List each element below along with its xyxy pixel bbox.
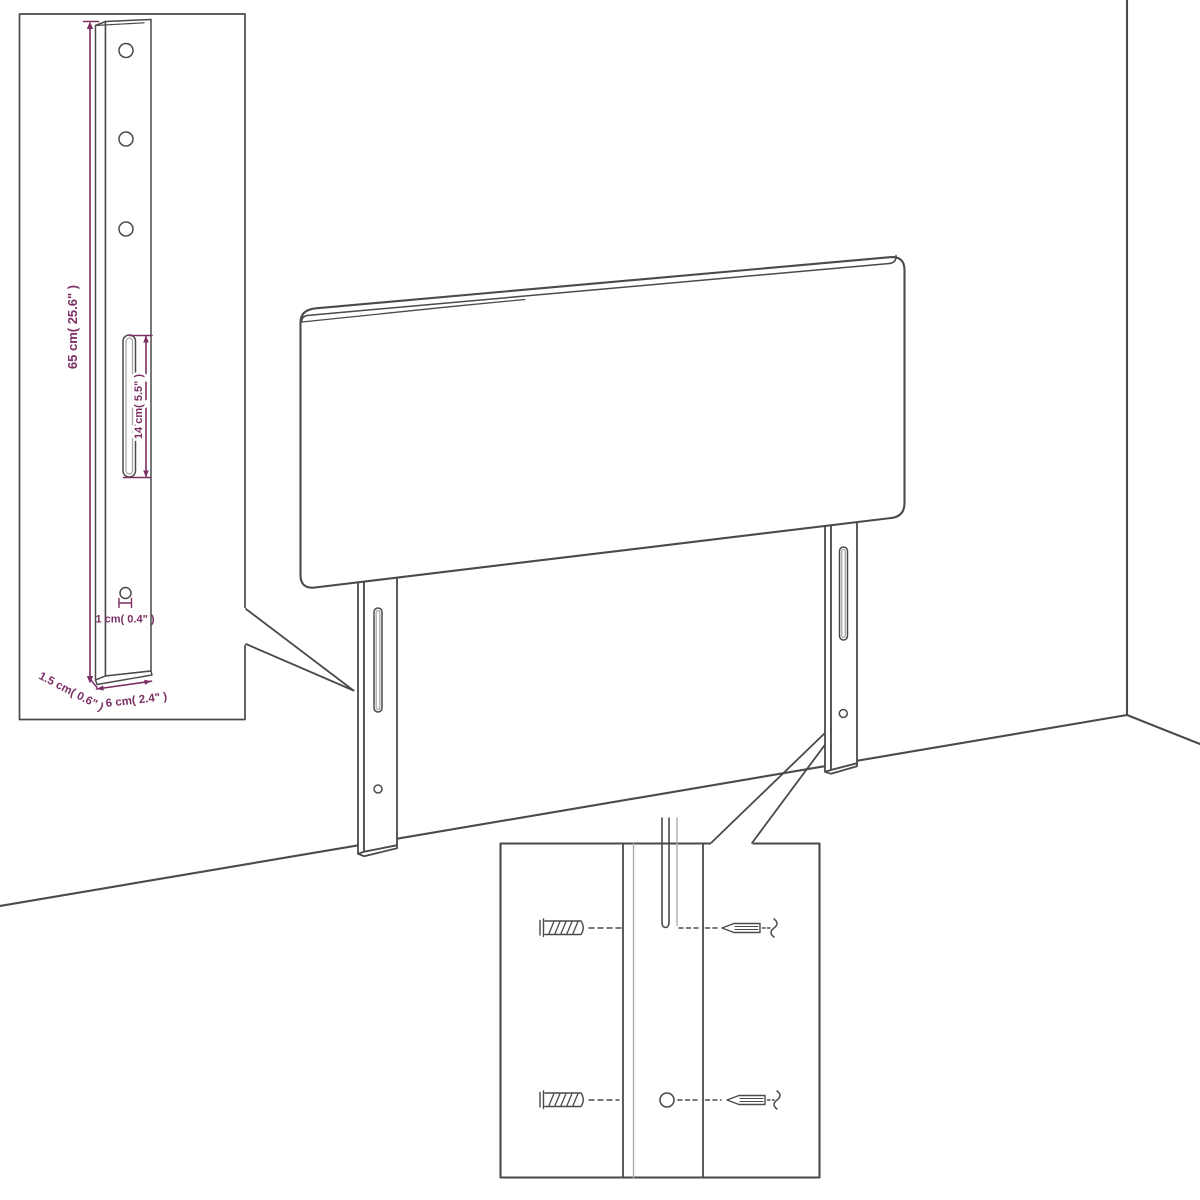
- mounting-detail-inset: [501, 818, 820, 1178]
- left-leg-slot: [374, 608, 382, 712]
- inset-leg-screw-hole: [660, 1093, 674, 1107]
- height-dimension-label: 65 cm( 25.6" ): [65, 285, 80, 369]
- mount-callout-line-left: [711, 718, 841, 844]
- right-leg-slot: [840, 547, 848, 640]
- headboard-panel: [301, 256, 905, 588]
- headboard-panel-face: [301, 257, 905, 588]
- headboard-assembly-diagram: 65 cm( 25.6" ) 14 cm( 5.5" ) 1 cm( 0.4" …: [0, 0, 1200, 1200]
- post-drawing: [96, 20, 153, 685]
- post-hole-1: [119, 44, 133, 58]
- headboard-right-leg: [825, 505, 857, 774]
- left-leg-screw-hole: [374, 785, 382, 793]
- assembly-diagram-page: 65 cm( 25.6" ) 14 cm( 5.5" ) 1 cm( 0.4" …: [0, 0, 1200, 1200]
- post-hole-3: [119, 222, 133, 236]
- post-callout-line-bottom: [246, 644, 354, 691]
- post-hole-2: [119, 132, 133, 146]
- right-leg-screw-hole: [839, 710, 847, 718]
- post-bottom-hole: [120, 588, 131, 599]
- mounting-inset-frame: [501, 844, 820, 1178]
- hole-dimension-label: 1 cm( 0.4" ): [95, 613, 154, 625]
- headboard-left-leg: [358, 562, 397, 856]
- floor-line-right: [1127, 715, 1200, 744]
- slot-dimension-label: 14 cm( 5.5" ): [133, 374, 145, 439]
- post-side-face: [96, 22, 106, 681]
- post-callout-line-top: [246, 609, 354, 691]
